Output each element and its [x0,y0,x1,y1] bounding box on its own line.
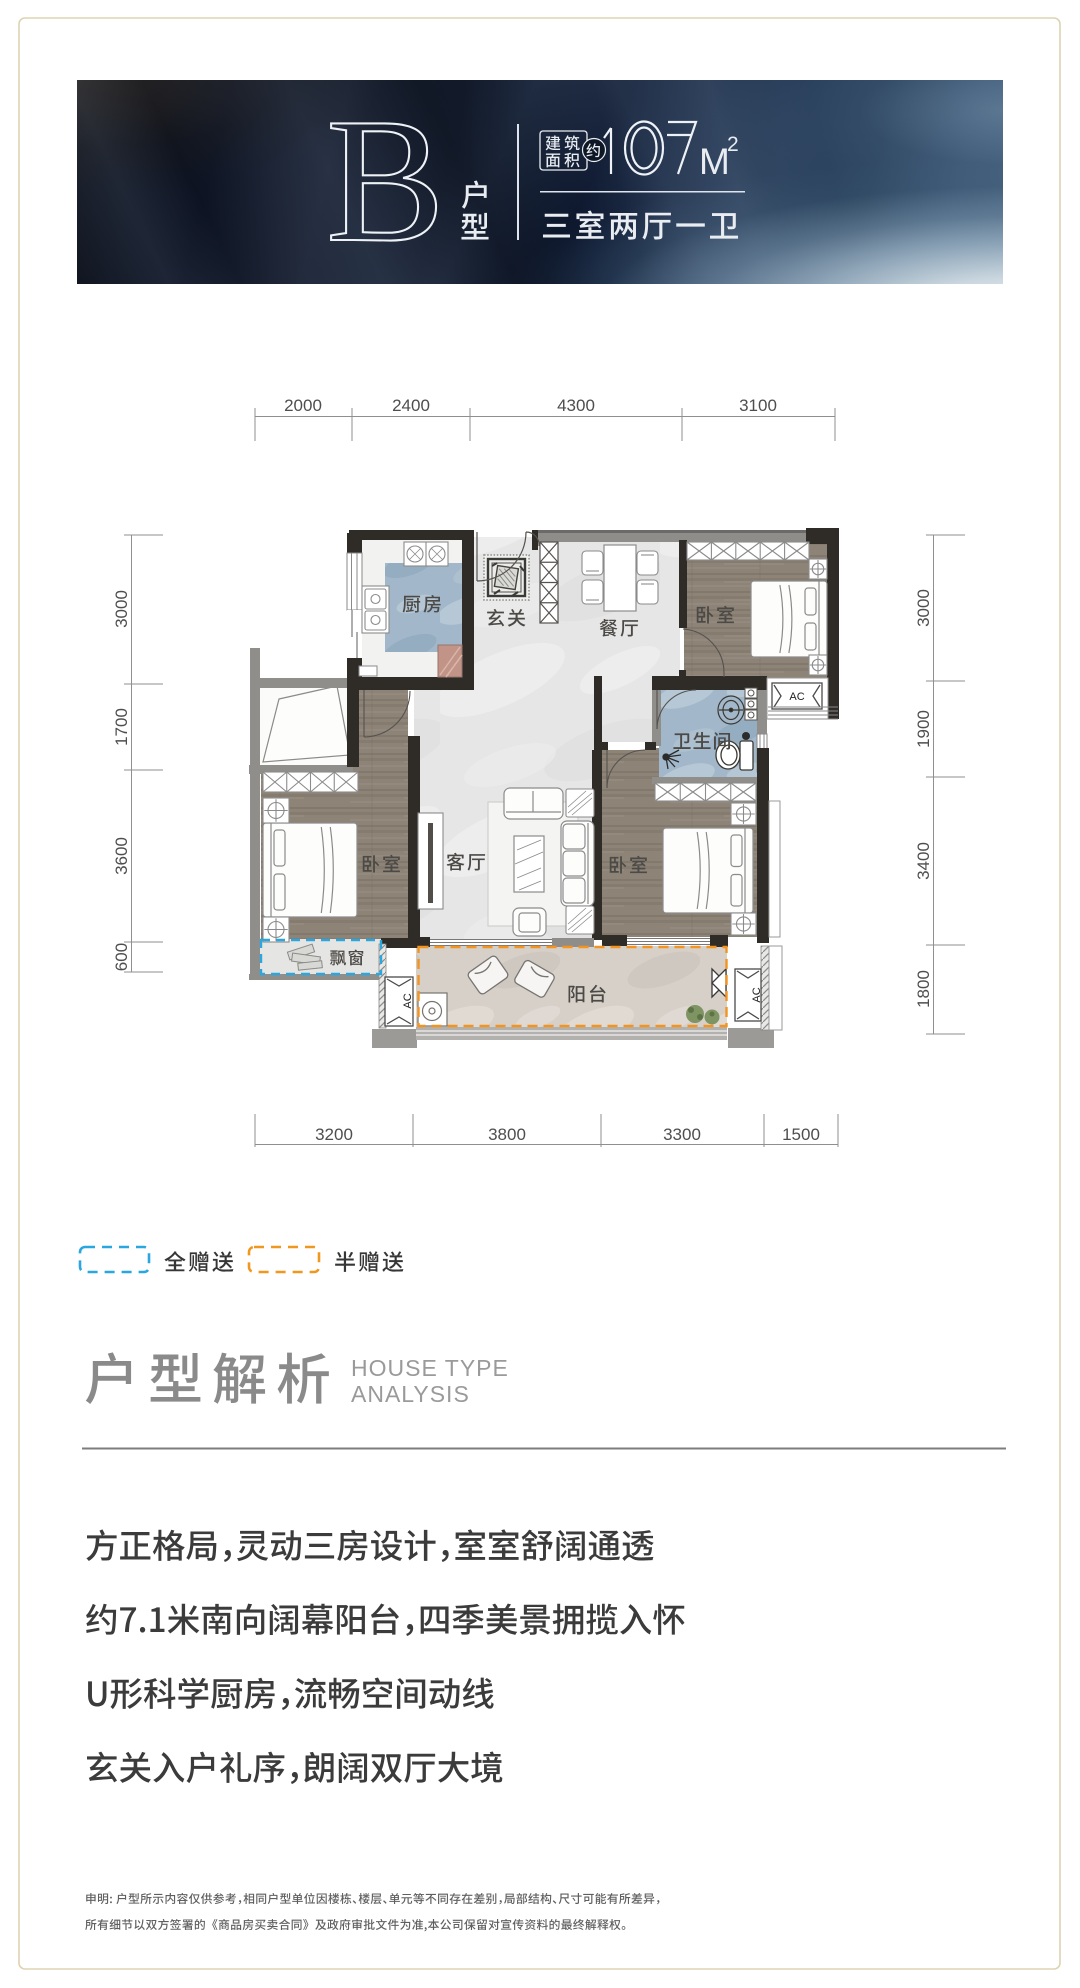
svg-text:3600: 3600 [112,837,131,875]
svg-text:3000: 3000 [112,590,131,628]
svg-text:3200: 3200 [315,1125,353,1144]
svg-text:HOUSE TYPE: HOUSE TYPE [351,1355,509,1381]
svg-text:1800: 1800 [914,970,933,1008]
svg-text:2400: 2400 [392,396,430,415]
svg-text:3800: 3800 [488,1125,526,1144]
svg-text:B: B [326,81,445,279]
svg-text:3400: 3400 [914,842,933,880]
svg-text:3000: 3000 [914,589,933,627]
svg-text:1500: 1500 [782,1125,820,1144]
svg-text:M: M [699,141,730,182]
svg-text:1900: 1900 [914,710,933,748]
svg-text:AC: AC [402,993,414,1008]
svg-text:4300: 4300 [557,396,595,415]
svg-text:3300: 3300 [663,1125,701,1144]
svg-text:AC: AC [751,987,763,1002]
svg-text:2: 2 [727,133,739,156]
svg-text:3100: 3100 [739,396,777,415]
svg-text:ANALYSIS: ANALYSIS [351,1381,470,1407]
svg-text:600: 600 [112,943,131,971]
svg-text:AC: AC [789,691,804,703]
svg-text:2000: 2000 [284,396,322,415]
svg-text:1700: 1700 [112,708,131,746]
